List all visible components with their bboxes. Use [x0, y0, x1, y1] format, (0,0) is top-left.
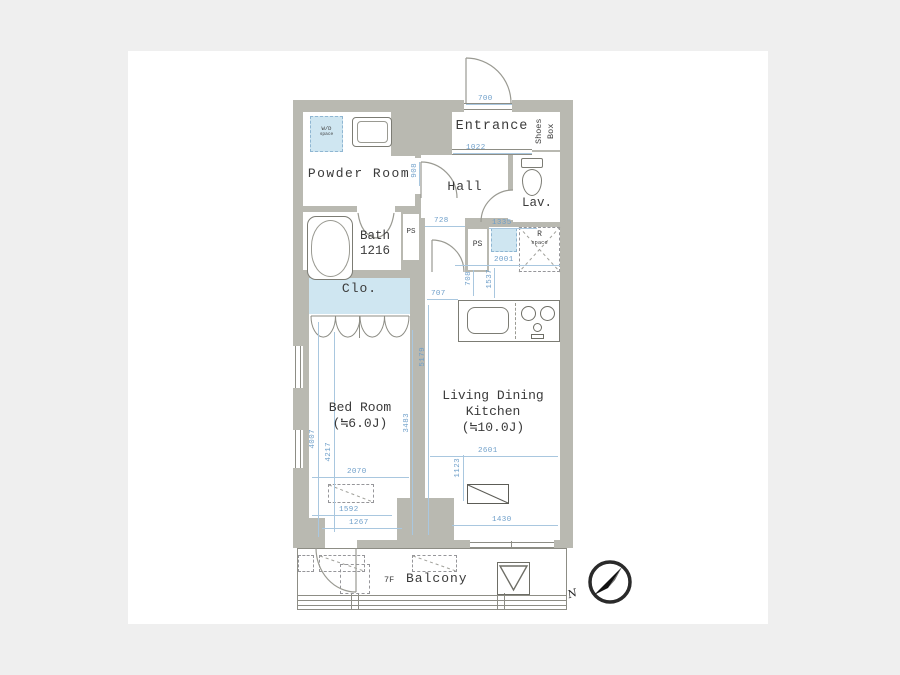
lavatory-label: Lav.: [516, 196, 558, 211]
ldk-sliding-door: [470, 540, 554, 548]
window-glass-lines: [295, 346, 301, 388]
bath-label: Bath1216: [351, 229, 399, 260]
counter-divider: [515, 303, 516, 339]
balcony-railing-line: [297, 600, 567, 601]
entrance-step-line: [452, 149, 532, 155]
washing-pan-space: [491, 228, 517, 252]
wd-line1: W/D: [310, 125, 343, 132]
bedroom-balcony-door-opening: [325, 540, 357, 548]
balcony-divider-tick: [497, 593, 505, 610]
stove-burner-small-icon: [533, 323, 542, 332]
refrigerator-space-label: Rspace: [519, 231, 560, 246]
powder-door-opening: [415, 158, 421, 194]
shoes-box-line2: Box: [546, 123, 556, 138]
entrance-door-threshold: [464, 100, 512, 112]
equipment-outline-balcony: [298, 555, 314, 572]
balcony-divider-tick: [351, 593, 359, 610]
r-space-line2: space: [519, 240, 560, 246]
balcony-railing-line: [297, 605, 567, 606]
lavatory-door-opening: [508, 190, 513, 220]
stove-burner-icon: [521, 306, 536, 321]
entrance-label: Entrance: [452, 119, 532, 135]
hall-label: Hall: [437, 179, 493, 195]
ldk-size: (≒10.0J): [430, 420, 556, 436]
corridor-floor: [425, 218, 465, 272]
bathtub-basin: [311, 220, 350, 277]
stove-grill-icon: [531, 334, 544, 339]
bath-door-opening: [357, 206, 395, 212]
vanity-sink-icon: [352, 117, 392, 147]
bathtub-icon: [307, 216, 353, 280]
sliding-door-meeting-stile: [511, 541, 512, 547]
bath-name: Bath: [351, 229, 399, 244]
equipment-outline-bedroom: [328, 484, 374, 503]
kitchen-sink-icon: [467, 307, 509, 334]
threshold-lines: [464, 103, 512, 110]
sink-basin: [357, 121, 388, 143]
bedroom-size: (≒6.0J): [316, 416, 404, 432]
bedroom-window-upper: [292, 346, 303, 388]
ldk-line1: Living Dining: [430, 388, 556, 404]
kitchen-counter: [458, 300, 560, 342]
structural-block: [397, 498, 454, 540]
toilet-tank-icon: [521, 158, 543, 168]
balcony-floor-label: 7F: [384, 575, 394, 585]
counter-outline-ldk: [467, 484, 509, 504]
pipe-space-left-label: PS: [403, 228, 419, 237]
bath-size: 1216: [351, 244, 399, 259]
bedroom-name: Bed Room: [316, 400, 404, 416]
balcony-railing-line: [297, 595, 567, 596]
pipe-space-right-label: PS: [468, 240, 487, 250]
floorplan-screenshot: 7001022908728133520017081537707517934834…: [0, 0, 900, 675]
shoes-box-line1: Shoes: [534, 118, 544, 144]
bedroom-label: Bed Room(≒6.0J): [316, 400, 404, 432]
ldk-line2: Kitchen: [430, 404, 556, 420]
wall-step: [309, 518, 325, 540]
equipment-outline-balcony: [412, 555, 457, 572]
ldk-label: Living DiningKitchen(≒10.0J): [430, 388, 556, 436]
compass-icon: [582, 555, 636, 609]
equipment-outline-balcony-door: [340, 564, 370, 594]
wd-line2: space: [310, 132, 343, 138]
wall-notch: [391, 112, 415, 156]
powder-room-label: Powder Room: [303, 166, 415, 182]
stove-burner-icon: [540, 306, 555, 321]
drain-box-icon: [497, 562, 530, 595]
wd-space-label: W/Dspace: [310, 125, 343, 138]
closet-label: Clo.: [309, 281, 410, 297]
window-glass-lines: [295, 430, 301, 468]
shoes-box-label: ShoesBox: [534, 111, 558, 151]
bedroom-window-lower: [292, 430, 303, 468]
balcony-label: Balcony: [406, 571, 468, 587]
